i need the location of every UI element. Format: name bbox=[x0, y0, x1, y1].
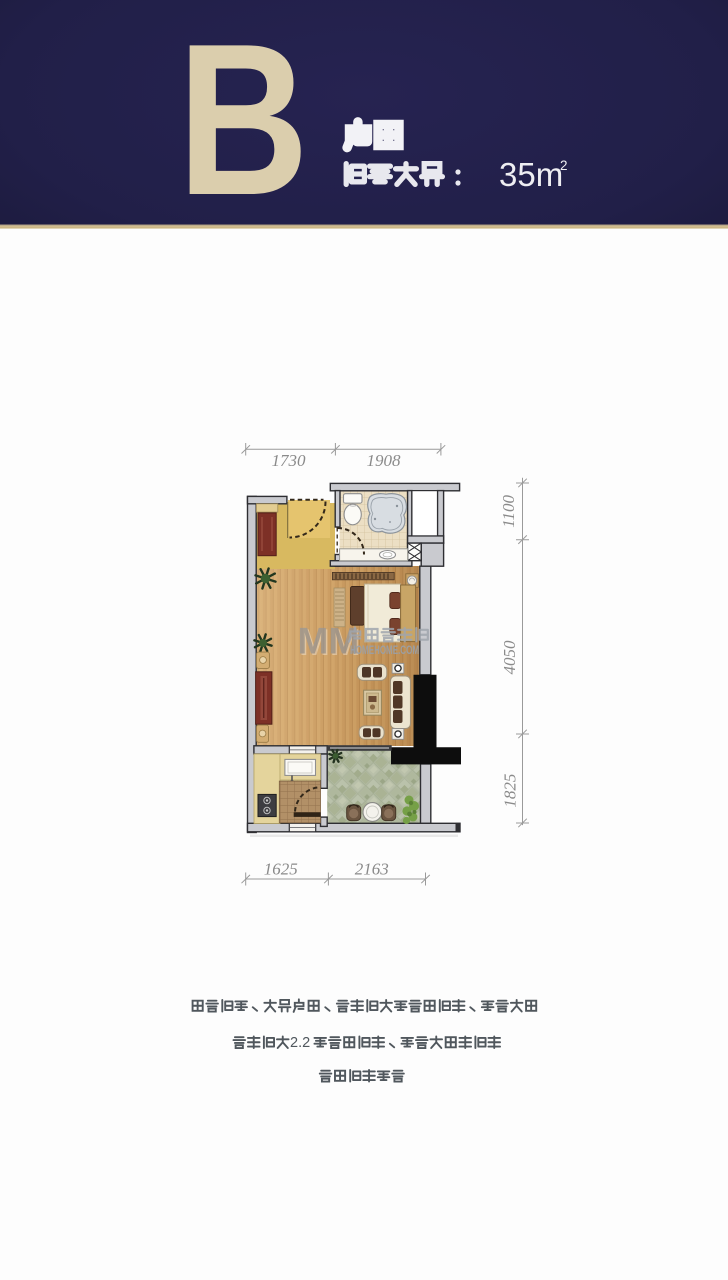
svg-text:4050: 4050 bbox=[500, 640, 519, 675]
svg-text:1730: 1730 bbox=[272, 451, 307, 470]
svg-text:1100: 1100 bbox=[499, 495, 518, 528]
svg-text:2.2: 2.2 bbox=[290, 1035, 310, 1051]
svg-text:1625: 1625 bbox=[264, 860, 298, 879]
svg-text:2163: 2163 bbox=[355, 860, 389, 879]
svg-text:HOMEHOME.COM: HOMEHOME.COM bbox=[350, 645, 419, 657]
svg-text:1825: 1825 bbox=[501, 774, 520, 808]
svg-text:1908: 1908 bbox=[367, 451, 402, 470]
